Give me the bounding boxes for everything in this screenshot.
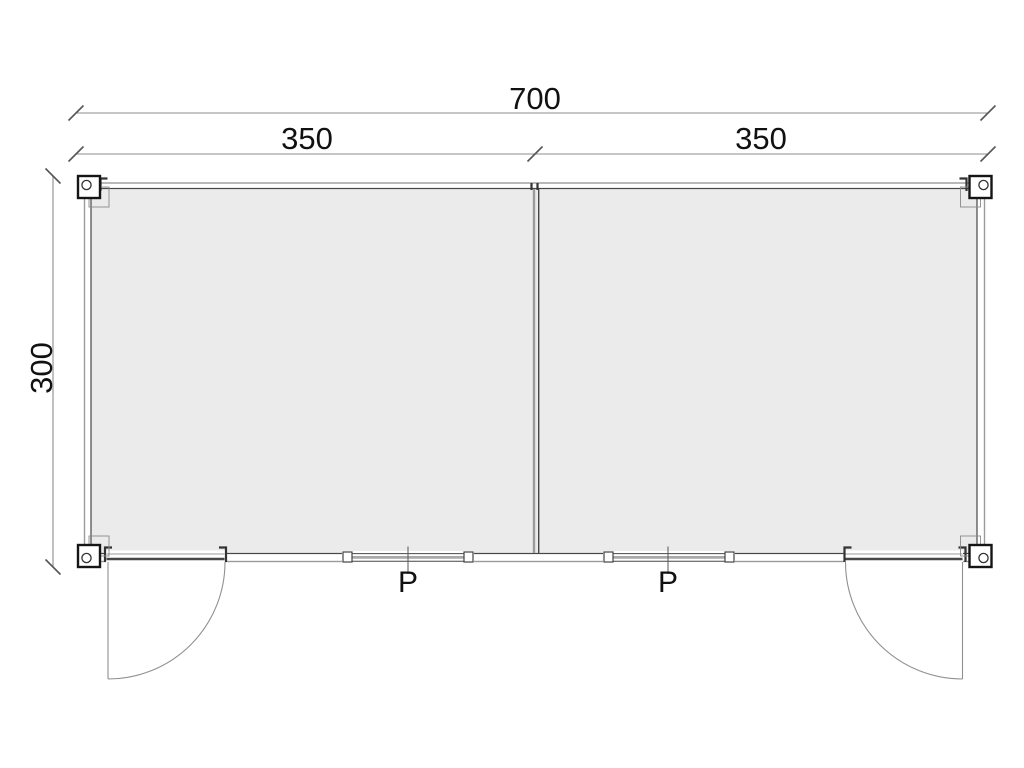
window-label-right: P bbox=[658, 566, 678, 599]
window-right: P bbox=[603, 547, 735, 600]
dimension-bays: 350 350 bbox=[69, 121, 996, 162]
window-label-left: P bbox=[398, 566, 418, 599]
window-jamb-right bbox=[464, 552, 473, 562]
dimension-label-right-bay: 350 bbox=[735, 121, 787, 156]
casting-hole bbox=[82, 180, 91, 189]
dimension-total-width: 700 bbox=[69, 81, 996, 121]
door-swing-arc bbox=[846, 562, 963, 679]
window-jamb-right bbox=[725, 552, 734, 562]
door-opening-gap bbox=[844, 551, 963, 564]
window-jamb-left bbox=[604, 552, 613, 562]
door-opening-gap bbox=[106, 551, 225, 564]
window-jamb-left bbox=[343, 552, 352, 562]
dimension-depth: 300 bbox=[24, 169, 61, 575]
casting-hole bbox=[979, 553, 988, 562]
door-left bbox=[105, 548, 226, 680]
window-left: P bbox=[342, 547, 474, 600]
dimension-label-depth: 300 bbox=[24, 342, 59, 394]
door-right bbox=[844, 548, 966, 680]
dimension-label-total-width: 700 bbox=[509, 81, 561, 116]
dimension-label-left-bay: 350 bbox=[281, 121, 333, 156]
casting-hole bbox=[979, 180, 988, 189]
floor-plan-page: P P 700 bbox=[0, 0, 1024, 768]
casting-hole bbox=[82, 553, 91, 562]
floor-plan-drawing: P P 700 bbox=[0, 0, 1024, 768]
door-swing-arc bbox=[108, 562, 225, 679]
